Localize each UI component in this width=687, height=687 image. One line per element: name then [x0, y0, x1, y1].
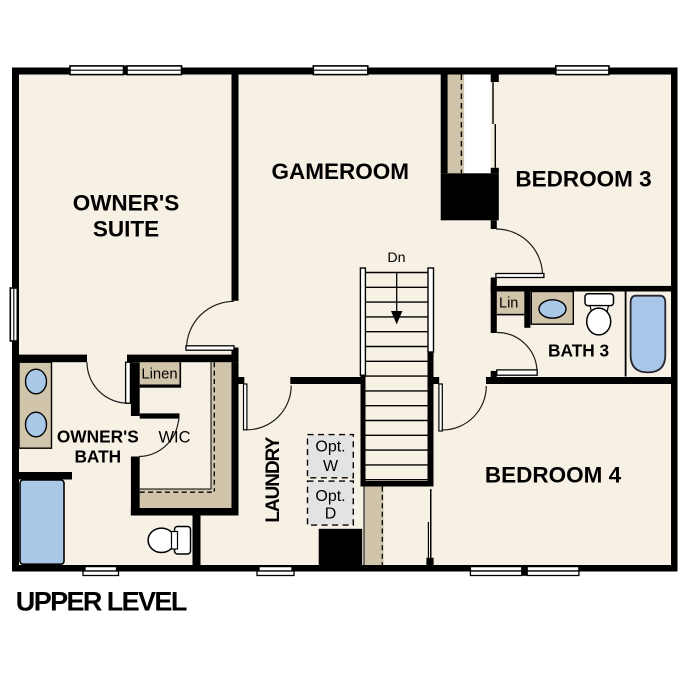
svg-text:WIC: WIC: [158, 428, 190, 446]
svg-text:UPPER LEVEL: UPPER LEVEL: [16, 586, 187, 616]
svg-text:LAUNDRY: LAUNDRY: [263, 436, 284, 522]
svg-text:OWNER'S: OWNER'S: [57, 427, 139, 447]
svg-text:BEDROOM 4: BEDROOM 4: [485, 463, 622, 488]
svg-text:Dn: Dn: [387, 250, 405, 266]
svg-text:BATH 3: BATH 3: [548, 341, 609, 361]
svg-text:Linen: Linen: [141, 367, 177, 383]
svg-text:D: D: [325, 506, 337, 523]
svg-text:BATH: BATH: [74, 447, 121, 467]
svg-text:Opt.: Opt.: [315, 439, 345, 456]
svg-text:Opt.: Opt.: [315, 488, 345, 505]
svg-text:OWNER'S: OWNER'S: [73, 191, 180, 216]
svg-text:BEDROOM 3: BEDROOM 3: [515, 166, 651, 191]
svg-text:W: W: [323, 458, 339, 475]
svg-text:SUITE: SUITE: [93, 217, 159, 242]
svg-text:Lin: Lin: [499, 296, 518, 312]
svg-text:GAMEROOM: GAMEROOM: [272, 159, 410, 184]
